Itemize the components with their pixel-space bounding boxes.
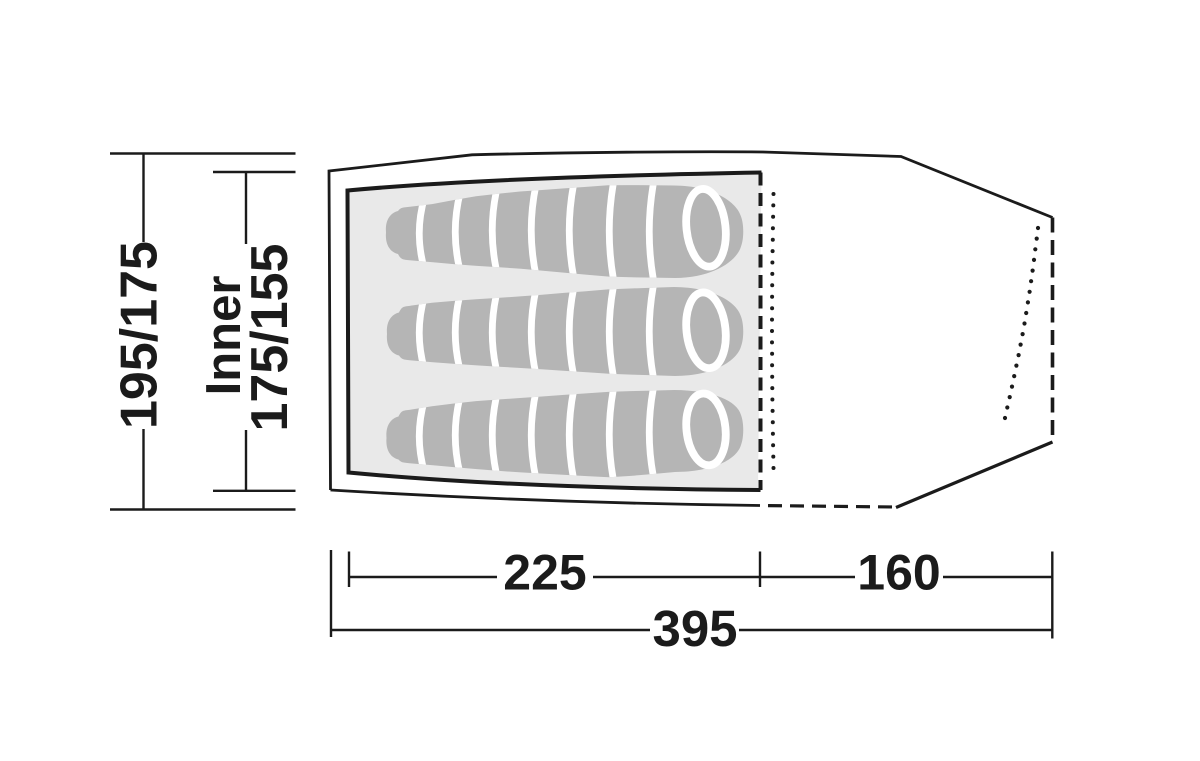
svg-text:395: 395: [652, 600, 737, 657]
svg-text:225: 225: [503, 545, 586, 601]
svg-text:160: 160: [857, 545, 940, 601]
svg-text:175/155: 175/155: [241, 244, 299, 432]
svg-text:195/175: 195/175: [111, 241, 169, 429]
